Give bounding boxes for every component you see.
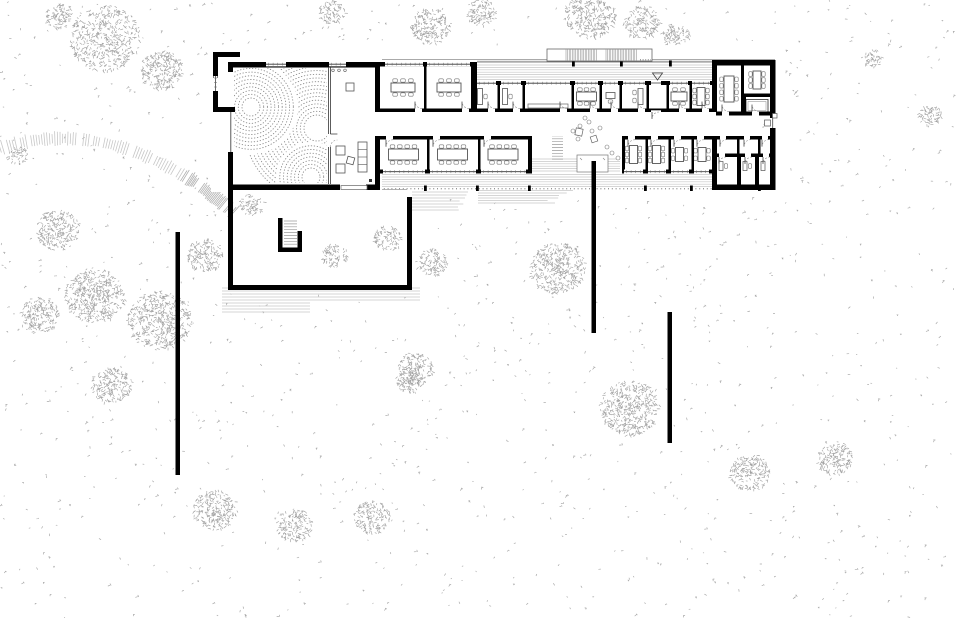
walled-garden <box>228 190 412 290</box>
tree-cluster <box>467 0 497 27</box>
tree-cluster <box>193 490 238 530</box>
tree-cluster <box>70 6 141 73</box>
tree-cluster <box>817 442 853 476</box>
tree-cluster <box>373 226 402 251</box>
contour-tick-band <box>0 131 239 217</box>
tree-cluster <box>91 368 133 405</box>
tree-cluster <box>623 7 662 40</box>
tree-cluster <box>918 106 943 127</box>
tree-cluster <box>416 248 447 276</box>
tree-cluster <box>354 501 391 535</box>
tree-cluster <box>319 0 348 23</box>
tree-cluster <box>599 381 661 437</box>
tree-cluster <box>65 268 127 323</box>
tree-cluster <box>187 239 223 272</box>
tree-cluster <box>729 455 770 491</box>
site-plan <box>0 0 960 618</box>
tree-cluster <box>529 243 586 294</box>
entrance-canopy <box>547 49 652 61</box>
tree-cluster <box>276 509 313 542</box>
tree-cluster <box>20 297 59 333</box>
tree-cluster <box>239 194 267 215</box>
tree-cluster <box>861 50 883 68</box>
tree-cluster <box>564 0 616 40</box>
freestanding-walls <box>176 161 673 475</box>
floor-plan-svg <box>0 0 960 618</box>
tree-cluster <box>322 244 349 267</box>
tree-cluster <box>410 9 450 45</box>
tree-cluster <box>46 4 73 31</box>
tree-cluster <box>141 51 183 91</box>
tree-cluster <box>661 24 691 45</box>
tree-cluster <box>127 291 193 350</box>
tree-cluster <box>37 210 80 250</box>
